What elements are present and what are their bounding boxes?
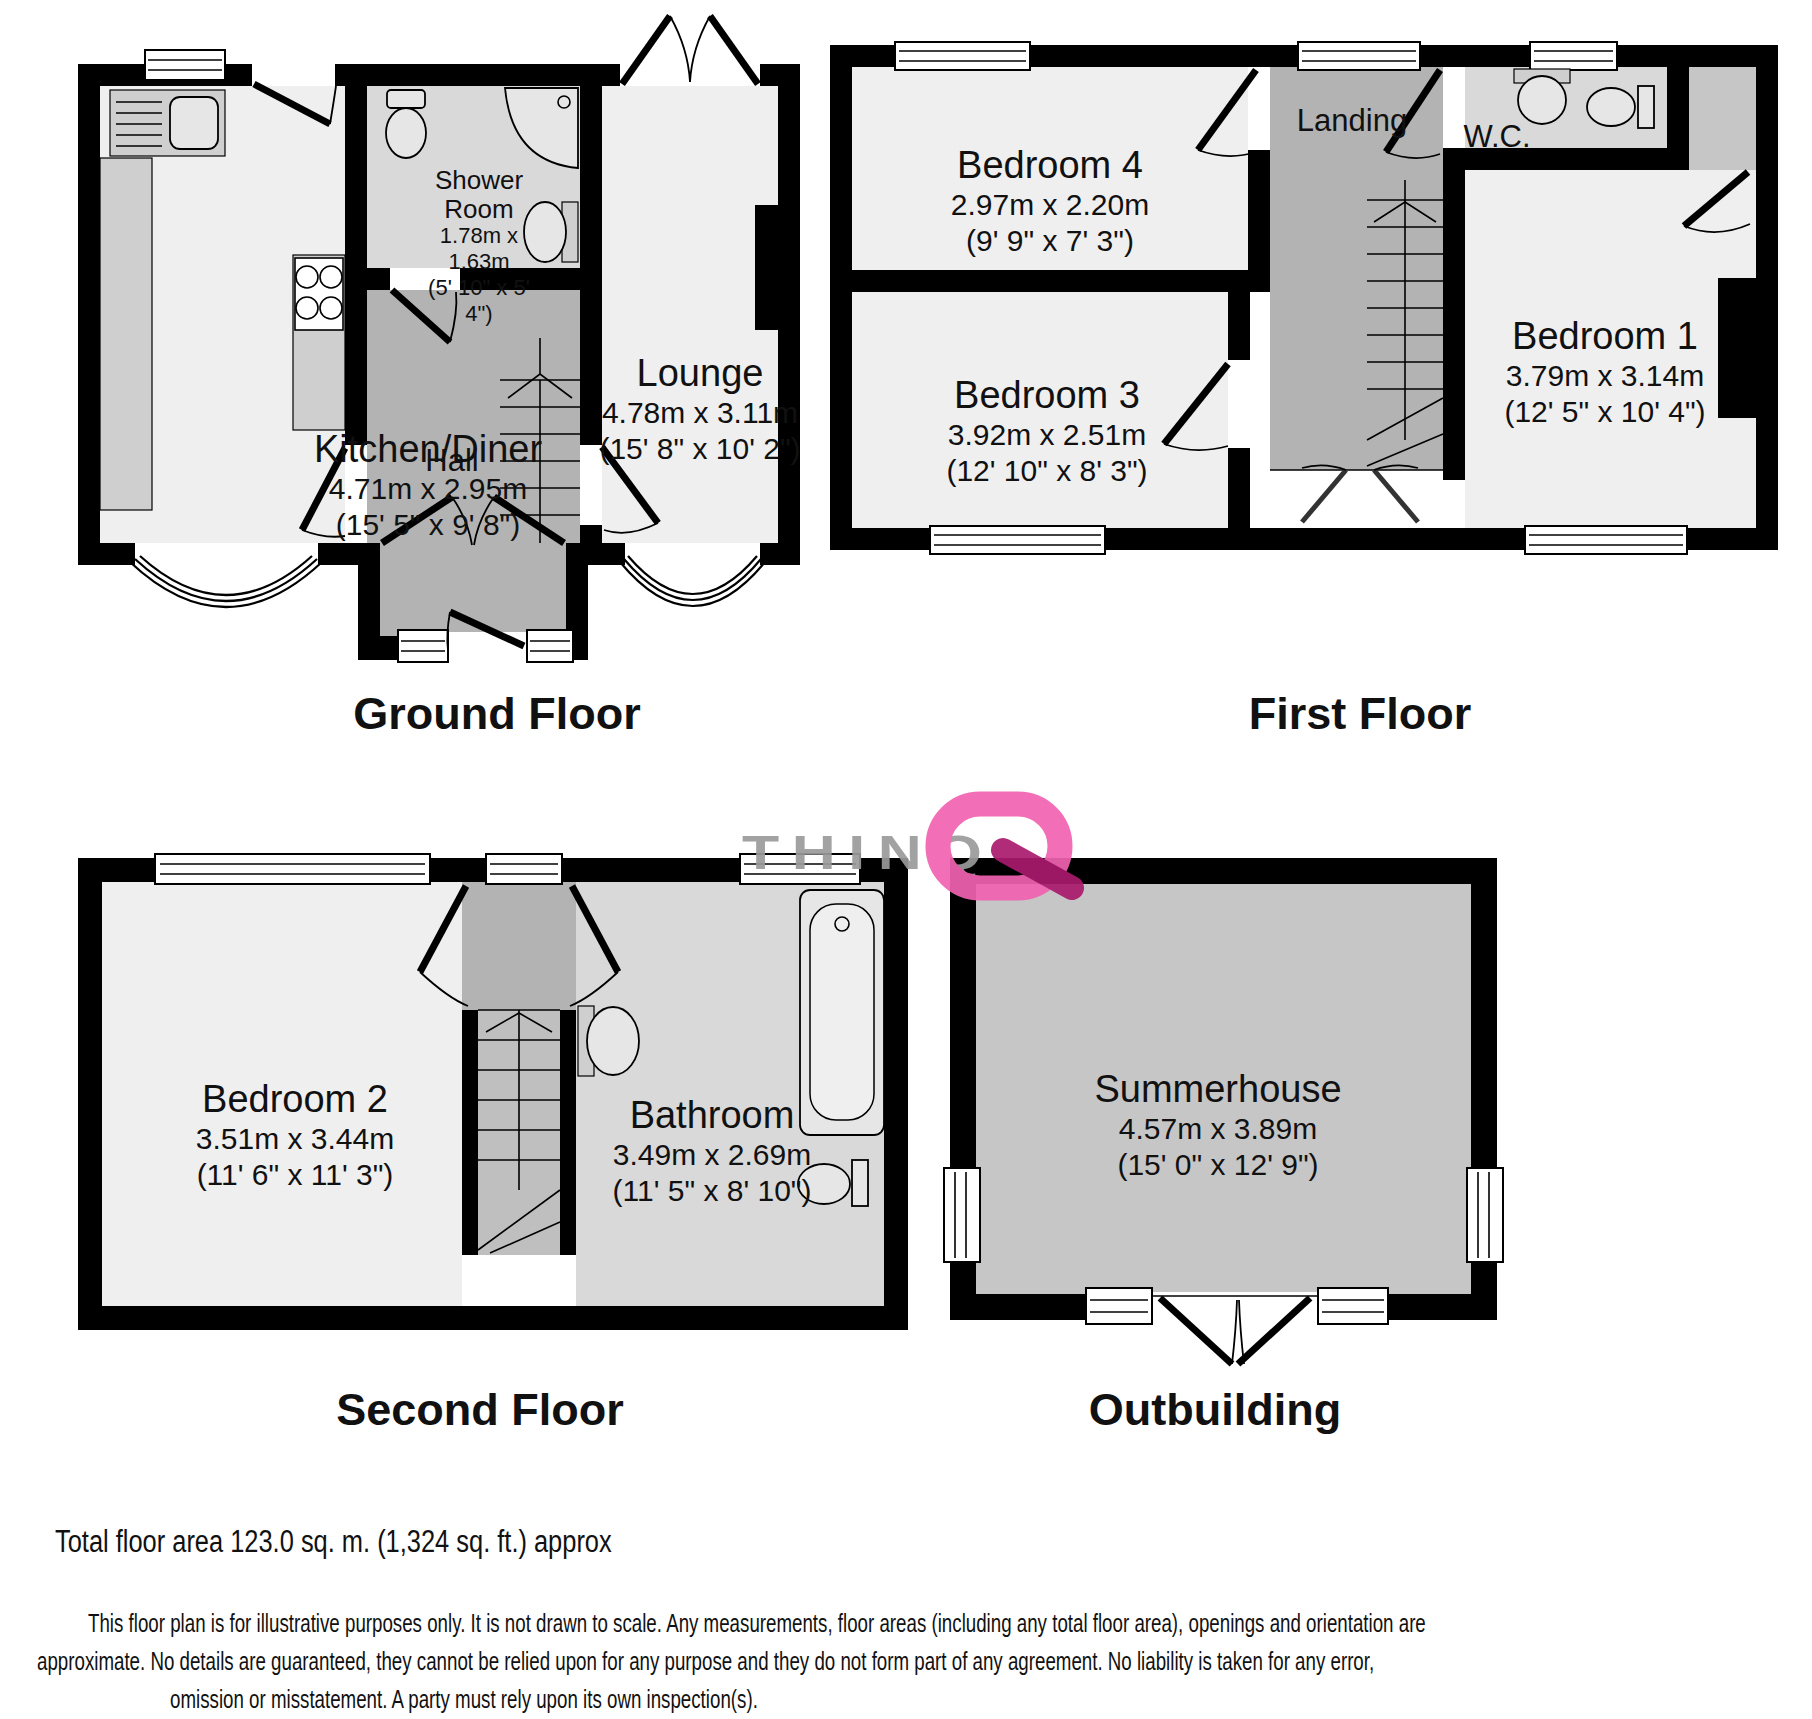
room-label-bedroom1: Bedroom 1 3.79m x 3.14m (12' 5" x 10' 4"… xyxy=(1455,315,1755,430)
stair-landing-area xyxy=(462,882,576,1010)
ground-floor-plan xyxy=(78,16,800,662)
room-imperial: (15' 0" x 12' 9") xyxy=(1068,1147,1368,1183)
room-metric: 3.79m x 3.14m xyxy=(1455,358,1755,394)
room-label-wc: W.C. xyxy=(1442,120,1552,155)
room-name: Bedroom 2 xyxy=(145,1078,445,1121)
room-name: Summerhouse xyxy=(1068,1068,1368,1111)
room-imperial: (12' 10" x 8' 3") xyxy=(897,453,1197,489)
floor-title-first: First Floor xyxy=(1170,688,1550,740)
room-name: Bedroom 4 xyxy=(900,144,1200,187)
room-name: Hall xyxy=(407,444,497,479)
kitchen-sink-icon xyxy=(110,90,225,156)
room-metric: 4.57m x 3.89m xyxy=(1068,1111,1368,1147)
room-label-shower-room: Shower Room 1.78m x 1.63m (5' 10" x 5' 4… xyxy=(412,166,546,327)
room-imperial: (11' 5" x 8' 10") xyxy=(562,1173,862,1209)
room-name: Lounge xyxy=(548,352,852,395)
room-label-lounge: Lounge 4.78m x 3.11m (15' 8" x 10' 2") xyxy=(548,352,852,467)
room-name: Shower Room xyxy=(412,166,546,223)
disclaimer-line-3: omission or misstatement. A party must r… xyxy=(170,1684,758,1715)
room-imperial: (15' 8" x 10' 2") xyxy=(548,431,852,467)
room-metric: 2.97m x 2.20m xyxy=(900,187,1200,223)
room-imperial: (9' 9" x 7' 3") xyxy=(900,223,1200,259)
room-metric: 4.78m x 3.11m xyxy=(548,395,852,431)
room-name: Bedroom 3 xyxy=(897,374,1197,417)
room-name: Landing xyxy=(1282,104,1422,139)
room-label-bedroom2: Bedroom 2 3.51m x 3.44m (11' 6" x 11' 3"… xyxy=(145,1078,445,1193)
room-label-bedroom4: Bedroom 4 2.97m x 2.20m (9' 9" x 7' 3") xyxy=(900,144,1200,259)
room-label-summerhouse: Summerhouse 4.57m x 3.89m (15' 0" x 12' … xyxy=(1068,1068,1368,1183)
room-imperial: (11' 6" x 11' 3") xyxy=(145,1157,445,1193)
floor-title-outbuilding: Outbuilding xyxy=(1025,1384,1405,1436)
lounge-room xyxy=(602,86,778,543)
cupboard-area xyxy=(1689,67,1756,170)
room-label-landing: Landing xyxy=(1282,104,1422,139)
room-imperial: (5' 10" x 5' 4") xyxy=(412,275,546,327)
room-name: Bathroom xyxy=(562,1094,862,1137)
room-label-hall: Hall xyxy=(407,444,497,479)
chimney-breast xyxy=(755,205,800,330)
toilet-icon xyxy=(1587,86,1654,128)
basin-icon xyxy=(578,1006,639,1076)
total-floor-area: Total floor area 123.0 sq. m. (1,324 sq.… xyxy=(55,1524,612,1560)
room-imperial: (12' 5" x 10' 4") xyxy=(1455,394,1755,430)
room-imperial: (15' 5" x 9' 8") xyxy=(278,507,578,543)
floor-title-ground: Ground Floor xyxy=(307,688,687,740)
hob-icon xyxy=(293,255,345,430)
room-metric: 3.49m x 2.69m xyxy=(562,1137,862,1173)
toilet-icon xyxy=(386,90,426,158)
room-label-bedroom3: Bedroom 3 3.92m x 2.51m (12' 10" x 8' 3"… xyxy=(897,374,1197,489)
room-name: Bedroom 1 xyxy=(1455,315,1755,358)
room-metric: 3.92m x 2.51m xyxy=(897,417,1197,453)
room-metric: 3.51m x 3.44m xyxy=(145,1121,445,1157)
disclaimer-line-1: This floor plan is for illustrative purp… xyxy=(88,1608,1426,1639)
room-name: W.C. xyxy=(1442,120,1552,155)
floorplan-page: THINQ Kitchen/Diner 4.71m x 2.95m (15' 5… xyxy=(0,0,1812,1719)
room-metric: 1.78m x 1.63m xyxy=(412,223,546,275)
kitchen-counter xyxy=(100,158,152,510)
room-label-bathroom: Bathroom 3.49m x 2.69m (11' 5" x 8' 10") xyxy=(562,1094,862,1209)
disclaimer-line-2: approximate. No details are guaranteed, … xyxy=(37,1646,1374,1677)
thinq-watermark: THINQ xyxy=(700,780,1130,920)
floor-title-second: Second Floor xyxy=(290,1384,670,1436)
